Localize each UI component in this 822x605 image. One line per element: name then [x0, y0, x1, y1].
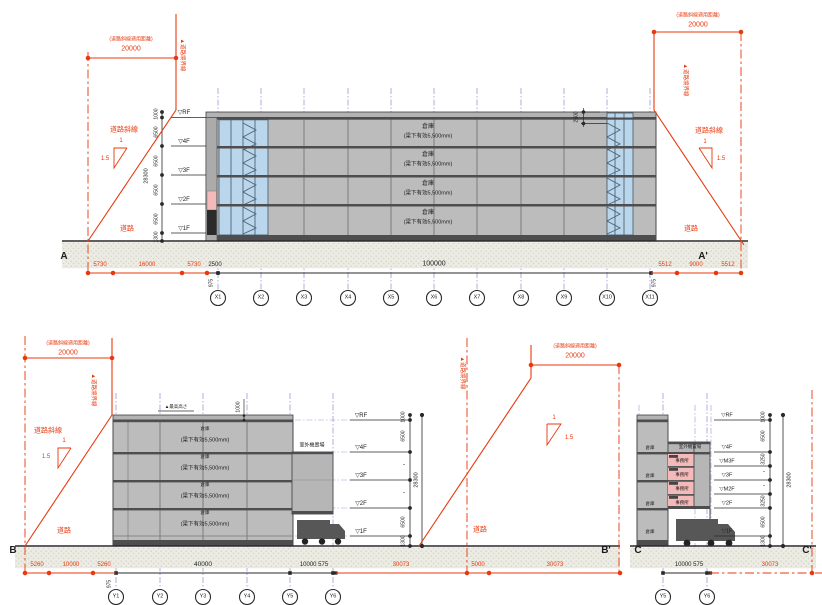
clearance-label: (梁下有効5,500mm) — [181, 438, 230, 444]
dim-label: 5260 — [30, 562, 43, 568]
road-label: 道路 — [57, 528, 71, 535]
dim-label: 5512 — [658, 262, 671, 268]
room-label: 倉庫 — [422, 124, 434, 130]
slope-ratio: 1 — [552, 415, 555, 421]
room-label: 倉庫 — [201, 483, 210, 488]
floor-level-label: ▽3F — [178, 168, 190, 174]
dim-label: 5260 — [97, 562, 110, 568]
grid-bubble-label: X8 — [518, 295, 525, 301]
grid-bubble-label: Y3 — [200, 594, 207, 600]
setback-distance-label: (道路斜線適用距離) — [553, 345, 596, 350]
floor-level-label: ▽RF — [178, 110, 191, 116]
dim-label: 10000 — [63, 562, 80, 568]
grid-bubble-label: Y5 — [660, 594, 667, 600]
dim-label: 5730 — [187, 262, 200, 268]
grid-bubble-label: Y4 — [244, 594, 251, 600]
grid-bubble-label: X7 — [474, 295, 481, 301]
dim-label: 6500 — [402, 516, 407, 527]
floor-level-label: ▽1F — [178, 226, 190, 232]
slope-ratio: 1 — [62, 438, 65, 444]
floor-level-label: ▽RF — [721, 413, 733, 419]
grid-bubble-label: X2 — [258, 295, 265, 301]
section-b-grid-bubbles — [109, 590, 341, 605]
grid-bubble-label: X4 — [345, 295, 352, 301]
road-boundary-label: ▲道路境界線 — [681, 64, 687, 97]
dim-label: 40000 — [194, 562, 212, 569]
dim-label: 1000 — [155, 108, 160, 119]
dim-label: 975 — [108, 580, 113, 588]
room-label: 倉庫 — [422, 181, 434, 187]
road-label: 道路 — [120, 226, 134, 233]
dim-label: 100000 — [422, 261, 445, 268]
dim-label: 6500 — [155, 155, 160, 166]
grid-bubble-label: X9 — [561, 295, 568, 301]
slope-ratio: 1 — [119, 138, 122, 144]
setback-distance-label: (道路斜線適用距離) — [109, 38, 152, 43]
dim-label: 30073 — [393, 562, 410, 568]
room-label: 倉庫 — [201, 511, 210, 516]
outdoor-unit-label: 室外機置場 — [679, 445, 702, 450]
dim-label: 28300 — [787, 472, 793, 487]
dim-label: 1000 — [762, 411, 767, 422]
clearance-label: (梁下有効5,500mm) — [181, 466, 230, 472]
clearance-label: (梁下有効5,500mm) — [181, 522, 230, 528]
dim-label: 28300 — [144, 168, 150, 183]
grid-bubble-label: X5 — [388, 295, 395, 301]
dim-label: 3250 — [762, 495, 767, 506]
office-label: 事務所 — [675, 487, 689, 492]
setback-distance-value: 20000 — [121, 46, 140, 53]
dim-label: 3250 — [762, 453, 767, 464]
dim-label: 1300 — [155, 231, 160, 242]
room-label: 倉庫 — [201, 427, 210, 432]
clearance-label: (梁下有効5,500mm) — [404, 162, 453, 168]
road-label: 道路 — [684, 226, 698, 233]
slope-ratio: 1.5 — [42, 454, 50, 460]
floor-level-label: ▽M2F — [719, 487, 734, 493]
clearance-label: (梁下有効5,500mm) — [181, 494, 230, 500]
slope-ratio: 1.5 — [565, 435, 573, 441]
setback-distance-value: 20000 — [688, 22, 707, 29]
dim-label: ・ — [761, 485, 766, 490]
floor-level-label: ▽2F — [178, 197, 190, 203]
dim-label: 30073 — [762, 562, 779, 568]
dim-label: 5000 — [471, 562, 484, 568]
setback-distance-label: (道路斜線適用距離) — [676, 14, 719, 19]
dim-label: 6500 — [155, 213, 160, 224]
room-label: 倉庫 — [646, 502, 655, 507]
road-boundary-label: ▲道路境界線 — [458, 357, 464, 390]
road-label: 道路 — [473, 527, 487, 534]
section-c-building — [637, 415, 735, 546]
section-marker: B — [9, 546, 16, 556]
room-label: 倉庫 — [422, 210, 434, 216]
grid-bubble-label: Y5 — [287, 594, 294, 600]
floor-level-label: ▽1F — [355, 529, 367, 535]
office-label: 事務所 — [675, 459, 689, 464]
dim-label: 1000 — [402, 411, 407, 422]
floor-level-label: ▽1F — [722, 529, 733, 535]
dim-label: 6500 — [762, 430, 767, 441]
room-label: 倉庫 — [422, 152, 434, 158]
grid-bubble-label: X11 — [645, 295, 654, 301]
dim-label: 975 — [653, 279, 658, 287]
dim-label: 6500 — [155, 126, 160, 137]
dim-label: 28300 — [414, 472, 420, 487]
office-label: 事務所 — [675, 501, 689, 506]
floor-level-label: ▽3F — [355, 473, 367, 479]
slope-ratio: 1.5 — [101, 156, 109, 162]
road-slope-label: 道路斜線 — [110, 127, 138, 134]
floor-level-label: ▽4F — [178, 139, 190, 145]
setback-distance-label: (道路斜線適用距離) — [46, 342, 89, 347]
grid-bubble-label: Y6 — [330, 594, 337, 600]
room-label: 倉庫 — [646, 530, 655, 535]
road-slope-label: 道路斜線 — [34, 428, 62, 435]
grid-bubble-label: X1 — [215, 295, 222, 301]
section-marker: B' — [601, 546, 611, 556]
truck-icon — [297, 520, 345, 545]
floor-level-label: ▽4F — [722, 445, 733, 451]
road-boundary-label: ▲道路境界線 — [89, 374, 95, 407]
grid-bubble-label: Y1 — [113, 594, 120, 600]
slope-ratio: 1 — [703, 139, 706, 145]
dim-label: 1300 — [762, 535, 767, 546]
floor-level-label: ▽2F — [355, 501, 367, 507]
dim-label: 975 — [210, 279, 215, 287]
section-marker: A — [60, 252, 67, 262]
dim-label: 6500 — [762, 516, 767, 527]
grid-bubble-label: X3 — [301, 295, 308, 301]
dim-label: 10000 575 — [675, 562, 703, 568]
floor-level-label: ▽2F — [722, 501, 733, 507]
dim-label: 10000 575 — [300, 562, 328, 568]
section-drawing-sheet: (道路斜線適用距離) 20000 ▲道路境界線 道路斜線 1 1.5 道路 (道… — [0, 0, 822, 605]
dim-label: 16000 — [139, 262, 156, 268]
slope-ratio: 1.5 — [717, 156, 725, 162]
floor-level-label: ▽RF — [355, 413, 368, 419]
section-marker: C' — [802, 546, 812, 556]
room-label: 倉庫 — [646, 474, 655, 479]
dim-label: 5512 — [721, 262, 734, 268]
dim-label: 2500 — [575, 111, 580, 122]
grid-bubble-label: X6 — [431, 295, 438, 301]
dim-label: 5730 — [93, 262, 106, 268]
section-marker: A' — [698, 252, 708, 262]
road-boundary-label: ▲道路境界線 — [178, 39, 184, 72]
section-marker: C — [634, 546, 641, 556]
clearance-label: (梁下有効5,500mm) — [404, 191, 453, 197]
dim-label: 6500 — [155, 184, 160, 195]
dim-label: 30073 — [547, 562, 564, 568]
setback-distance-value: 20000 — [565, 353, 584, 360]
floor-level-label: ▽4F — [355, 445, 367, 451]
dim-label: 1000 — [237, 401, 242, 412]
dim-label: ・ — [401, 464, 406, 469]
dim-label: 6500 — [402, 430, 407, 441]
dim-label: ・ — [761, 471, 766, 476]
max-height-label: ▲最高高さ — [165, 405, 187, 410]
clearance-label: (梁下有効5,500mm) — [404, 134, 453, 140]
dim-label: 2500 — [208, 262, 221, 268]
room-label: 倉庫 — [646, 446, 655, 451]
dim-label: 1300 — [402, 535, 407, 546]
floor-level-label: ▽3F — [722, 473, 733, 479]
dim-label: 9000 — [689, 262, 702, 268]
road-slope-label: 道路斜線 — [695, 128, 723, 135]
office-label: 事務所 — [675, 473, 689, 478]
grid-bubble-label: Y6 — [704, 594, 711, 600]
outdoor-unit-label: 室外機置場 — [299, 444, 324, 449]
setback-distance-value: 20000 — [58, 350, 77, 357]
room-label: 倉庫 — [201, 455, 210, 460]
floor-level-label: ▽M3F — [719, 459, 734, 465]
grid-bubble-label: X10 — [602, 295, 612, 301]
clearance-label: (梁下有効5,500mm) — [404, 220, 453, 226]
grid-bubble-label: Y2 — [157, 594, 164, 600]
dim-label: ・ — [401, 492, 406, 497]
drawing-linework — [0, 0, 822, 605]
